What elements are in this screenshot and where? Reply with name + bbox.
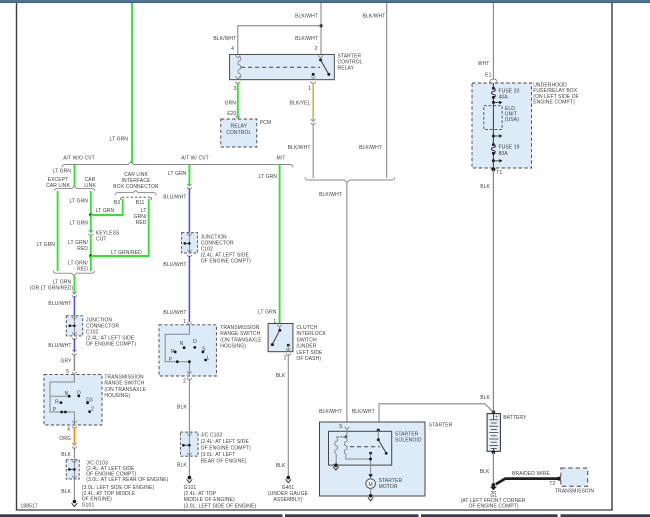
svg-text:BLK/WHT: BLK/WHT [295,14,318,20]
svg-text:TRANSMISSION: TRANSMISSION [104,375,144,381]
svg-text:(ON TRANSAXLE: (ON TRANSAXLE [220,337,262,343]
svg-text:BRAIDED WIRE: BRAIDED WIRE [512,471,550,477]
svg-text:REAR OF ENGINE): REAR OF ENGINE) [201,459,247,465]
svg-text:BLK/WHT: BLK/WHT [213,36,236,42]
svg-text:(3.0L: LEFT SIDE OF ENGINE): (3.0L: LEFT SIDE OF ENGINE) [184,503,257,509]
svg-text:STARTER: STARTER [395,431,419,437]
svg-text:T2: T2 [549,481,555,487]
svg-text:G101: G101 [184,485,197,491]
svg-text:OF ENGINE COMPT): OF ENGINE COMPT) [468,503,518,509]
svg-text:BLK: BLK [480,469,490,475]
svg-text:LT GRN/RED: LT GRN/RED [111,250,142,256]
svg-text:BLK/WHT: BLK/WHT [352,409,375,415]
svg-text:FUSE 19: FUSE 19 [499,145,520,151]
svg-text:STARTER: STARTER [429,422,453,428]
svg-text:RANGE SWITCH: RANGE SWITCH [220,331,260,337]
svg-text:(2.4L: AT LEFT SIDE: (2.4L: AT LEFT SIDE [201,439,250,445]
svg-text:BLK/YEL: BLK/YEL [290,101,311,107]
svg-text:LT GRN: LT GRN [70,221,89,227]
svg-text:(OR LT GRN/RED): (OR LT GRN/RED) [30,286,74,292]
svg-text:RANGE SWITCH: RANGE SWITCH [104,381,144,387]
svg-text:GRY: GRY [60,359,72,365]
svg-text:LINK: LINK [84,183,96,189]
svg-text:RED: RED [77,246,88,252]
svg-text:80A: 80A [499,151,509,157]
svg-text:BLK: BLK [276,373,286,379]
svg-text:G101: G101 [82,502,95,508]
svg-text:E1: E1 [485,73,491,79]
svg-text:OF ENGINE COMPT): OF ENGINE COMPT) [201,446,251,452]
svg-text:TRANSMISSION: TRANSMISSION [220,325,260,331]
svg-text:A/T W/O CVT: A/T W/O CVT [63,156,95,162]
svg-text:SOLENOID: SOLENOID [395,438,422,444]
svg-text:INTERLOCK: INTERLOCK [296,331,326,337]
svg-text:(ON TRANSAXLE: (ON TRANSAXLE [104,387,146,393]
svg-text:BLK: BLK [480,395,490,401]
svg-text:R: R [55,400,59,406]
svg-text:OF ENGINE COMPT): OF ENGINE COMPT) [201,259,251,265]
svg-text:BLU/WHT: BLU/WHT [48,343,71,349]
svg-text:OF ENGINE COMPT): OF ENGINE COMPT) [86,342,136,348]
svg-text:N: N [65,391,69,397]
svg-text:LT GRN: LT GRN [96,208,115,214]
svg-text:BLK: BLK [480,184,490,190]
svg-text:MOTOR: MOTOR [379,484,398,490]
svg-text:SWITCH: SWITCH [296,337,317,343]
svg-text:LT GRN: LT GRN [168,171,187,177]
svg-text:M: M [368,482,372,488]
svg-text:STARTER: STARTER [379,478,403,484]
svg-text:LT GRN: LT GRN [70,199,89,205]
svg-text:L: L [207,355,210,361]
svg-text:5: 5 [66,369,69,375]
svg-text:CONTROL: CONTROL [226,130,251,136]
svg-text:HOUSING): HOUSING) [104,393,130,399]
svg-text:1: 1 [308,86,311,92]
svg-text:(USA): (USA) [505,117,519,123]
svg-text:LT GRN: LT GRN [110,137,129,143]
svg-text:(UNDER: (UNDER [296,344,316,350]
svg-text:2: 2 [315,46,318,52]
svg-text:CUT: CUT [96,237,107,243]
svg-text:BLK: BLK [177,463,187,469]
svg-text:WHT: WHT [478,61,490,67]
svg-text:LT GRN: LT GRN [258,310,277,316]
svg-text:BLK: BLK [177,404,187,410]
svg-text:RELAY: RELAY [338,66,355,72]
svg-text:S: S [339,424,343,430]
svg-text:2: 2 [284,355,287,361]
svg-text:PCM: PCM [260,120,271,126]
svg-text:LT GRN: LT GRN [259,174,278,180]
svg-text:T1: T1 [496,170,502,176]
svg-text:BLU/WHT: BLU/WHT [163,195,186,201]
svg-text:188517: 188517 [21,504,38,510]
svg-text:2: 2 [183,379,186,385]
svg-text:ENGINE COMPT): ENGINE COMPT) [533,99,575,105]
svg-text:E20: E20 [227,111,236,117]
svg-text:CAR LINK: CAR LINK [46,183,70,189]
svg-text:GRN: GRN [225,101,237,107]
svg-text:TRANSMISSION: TRANSMISSION [555,489,595,495]
svg-text:BOX CONNECTOR: BOX CONNECTOR [113,184,159,190]
svg-text:N: N [180,341,184,347]
svg-text:RELAY: RELAY [231,124,248,130]
svg-text:(UNDER GAUGE: (UNDER GAUGE [268,491,309,497]
svg-text:M/T: M/T [277,156,286,162]
svg-text:J/C C103: J/C C103 [201,433,223,439]
svg-text:MIDDLE OF ENGINE): MIDDLE OF ENGINE) [184,497,235,503]
svg-text:BLK: BLK [61,452,71,458]
svg-text:BLK: BLK [276,463,286,469]
svg-text:(2.4L: AT TOP: (2.4L: AT TOP [184,491,217,497]
svg-text:OF DASH): OF DASH) [296,356,321,362]
svg-text:HOUSING): HOUSING) [220,344,246,350]
svg-text:40A: 40A [499,95,509,101]
svg-text:3: 3 [234,86,237,92]
svg-text:B11: B11 [136,200,145,206]
svg-text:BLK/WHT: BLK/WHT [359,145,382,151]
svg-text:2: 2 [91,407,94,413]
svg-text:P: P [169,357,173,363]
svg-text:1: 1 [183,319,186,325]
svg-text:A/T W/ CVT: A/T W/ CVT [181,156,209,162]
svg-text:BLU/WHT: BLU/WHT [163,262,186,268]
svg-text:4: 4 [231,46,234,52]
svg-text:BLK/WHT: BLK/WHT [295,36,318,42]
svg-text:LT GRN: LT GRN [53,169,72,175]
svg-text:CLUTCH: CLUTCH [296,325,317,331]
svg-text:G401: G401 [282,485,295,491]
svg-text:BLU/WHT: BLU/WHT [163,310,186,316]
svg-text:4: 4 [67,427,70,433]
svg-text:(3.0L: AT LEFT: (3.0L: AT LEFT [201,452,236,458]
svg-text:BLK/WHT: BLK/WHT [288,145,311,151]
svg-text:RED: RED [77,267,88,273]
svg-text:P: P [53,407,57,413]
svg-text:B3: B3 [114,200,120,206]
svg-text:BLK/WHT: BLK/WHT [362,14,385,20]
svg-text:LEFT SIDE: LEFT SIDE [296,350,323,356]
svg-text:ORG: ORG [59,436,71,442]
svg-text:RED: RED [136,220,147,226]
svg-text:BLK/WHT: BLK/WHT [319,192,342,198]
svg-text:BATTERY: BATTERY [503,415,527,421]
svg-text:(3.0L: AT LEFT REAR OF ENGINE): (3.0L: AT LEFT REAR OF ENGINE) [86,477,168,483]
svg-text:BLU/WHT: BLU/WHT [48,301,71,307]
svg-text:ASSEMBLY): ASSEMBLY) [273,497,302,503]
svg-text:BLK/WHT: BLK/WHT [319,409,342,415]
svg-text:LT GRN: LT GRN [37,242,56,248]
svg-text:BLK: BLK [61,489,71,495]
svg-text:D: D [193,339,197,345]
